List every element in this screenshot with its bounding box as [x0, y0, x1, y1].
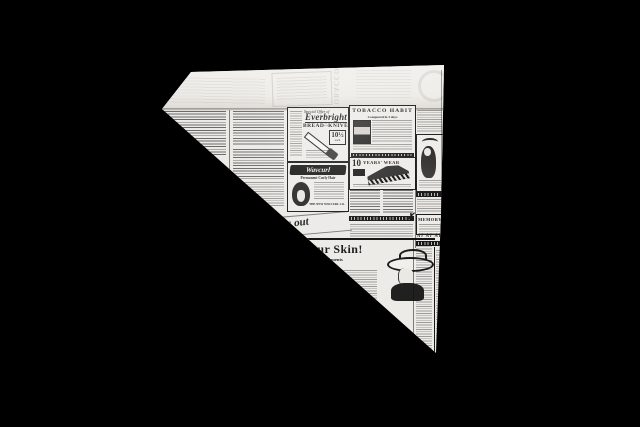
- newspaper-cone: TOBACCO Special Offer of Everbright BREA…: [160, 62, 450, 357]
- body-text-column-far-left: [164, 111, 226, 155]
- wavcurl-footer: THE NEW WAVCURL CO.: [308, 202, 346, 206]
- long-hair-woman-illustration: [421, 146, 436, 178]
- rail-mid-text: [417, 199, 442, 212]
- edge-mini-column-text: [436, 250, 443, 350]
- skin-ad-right-column-text: [416, 244, 432, 352]
- skin-ad: our Skin! ial Disfigurements mplexion an…: [287, 238, 435, 358]
- everbright-footer-text: [306, 150, 330, 159]
- everbright-ad: Special Offer of Everbright BREAD∴KNIVES…: [287, 107, 349, 162]
- rail-reversed-bar-1: [416, 192, 442, 197]
- classifieds-text-a: [350, 190, 380, 214]
- classifieds-block: [349, 190, 414, 240]
- everbright-side-text: [290, 111, 302, 156]
- wavcurl-brand-banner: Wavcurl: [289, 165, 346, 175]
- everbright-price-box: 10½ each: [329, 130, 346, 145]
- cutout-script-block: is out: [276, 212, 356, 238]
- ghost-ad-box: [271, 71, 332, 107]
- boot-ad-caption: [353, 184, 411, 188]
- newsprint-page: Special Offer of Everbright BREAD∴KNIVES…: [160, 110, 450, 357]
- skin-ad-line2: mplexion: [311, 263, 329, 268]
- skin-ad-line1: ial Disfigurements: [307, 257, 343, 262]
- gymnast-figure-mark: ✗: [406, 212, 414, 223]
- tobacco-subtitle: Conquered in 3 days: [350, 115, 415, 119]
- boot-ad-title: YEARS' WEAR: [363, 160, 400, 165]
- tobacco-man-portrait: [353, 120, 371, 144]
- skin-ad-headline: our Skin!: [311, 242, 363, 257]
- boot-ad-label-box: [353, 169, 365, 176]
- body-text-column-left-a: [233, 111, 284, 145]
- memory-ad-title: MEMORY: [417, 217, 443, 222]
- hair-ad-script-flourish: [422, 138, 438, 146]
- skin-ad-credit: and Merit: [345, 306, 367, 311]
- wavcurl-body-text: [314, 182, 344, 200]
- ghost-text-lines-right: [356, 70, 411, 100]
- everbright-brand: Everbright: [305, 112, 347, 123]
- memory-ad: MEMORY: [416, 214, 444, 235]
- tobacco-body-text-right: [372, 120, 412, 142]
- folded-top-flap: TOBACCO: [160, 62, 450, 110]
- edge-mini-column: [434, 247, 444, 353]
- wavcurl-ad: Wavcurl Permanent Curly Hair THE NEW WAV…: [287, 162, 349, 212]
- rail-reversed-bar-2: [416, 241, 442, 246]
- column-rule-1: [229, 110, 230, 206]
- body-text-column-left-c: [233, 182, 284, 206]
- fraktur-initials-row: Al Al Al: [417, 234, 441, 239]
- photo-stage: TOBACCO Special Offer of Everbright BREA…: [0, 0, 640, 427]
- ghost-circle-stamp: [418, 70, 450, 102]
- classifieds-text-c: [350, 224, 413, 238]
- skin-ad-right-rule: [413, 240, 414, 358]
- wavcurl-subtitle: Permanent Curly Hair: [288, 176, 348, 180]
- tobacco-body-text-bottom: [353, 144, 412, 151]
- ghost-mirrored-text: TOBACCO: [332, 66, 340, 108]
- rail-top-text: [417, 110, 442, 132]
- cutout-script-text: is out: [283, 216, 309, 231]
- skin-ad-brand-script: ne: [356, 305, 385, 338]
- tobacco-title: TOBACCO HABIT: [350, 108, 415, 114]
- boot-ad-number: 10: [352, 158, 361, 168]
- memory-ad-text: [419, 224, 441, 234]
- cutout-rule-bottom: [276, 230, 352, 238]
- ghost-text-lines: [170, 77, 265, 105]
- boot-ad: 10 YEARS' WEAR: [349, 157, 416, 190]
- coupon-value-bar: [349, 216, 414, 221]
- tobacco-ad: TOBACCO HABIT Conquered in 3 days: [349, 105, 416, 159]
- ghost-box-lines: [277, 76, 328, 102]
- hair-ad-caption: [419, 180, 441, 188]
- hair-tonic-ad: [416, 134, 444, 192]
- ghost-mirrored-headline: TOBACCO: [328, 64, 344, 108]
- everbright-title: BREAD∴KNIVES: [303, 123, 352, 129]
- right-rail: MEMORY Al Al Al: [416, 110, 443, 250]
- right-edge-crease: [441, 70, 442, 350]
- brand-script-swash: [326, 325, 385, 344]
- everbright-price-unit: each: [330, 139, 345, 142]
- skin-ad-body-text: [317, 270, 377, 302]
- classifieds-text-b: [383, 190, 413, 214]
- boot-illustration: [366, 162, 410, 185]
- body-text-column-left-b: [233, 149, 284, 179]
